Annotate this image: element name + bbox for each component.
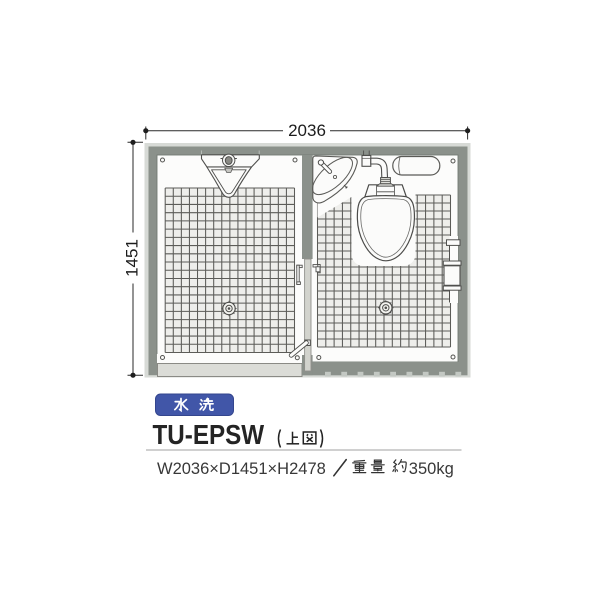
svg-text:1451: 1451 — [123, 239, 142, 277]
svg-text:W2036×D1451×H2478: W2036×D1451×H2478 — [157, 460, 326, 478]
svg-text:TU-EPSW: TU-EPSW — [153, 418, 265, 450]
svg-text:350kg: 350kg — [409, 460, 454, 478]
svg-text:2036: 2036 — [288, 121, 326, 140]
